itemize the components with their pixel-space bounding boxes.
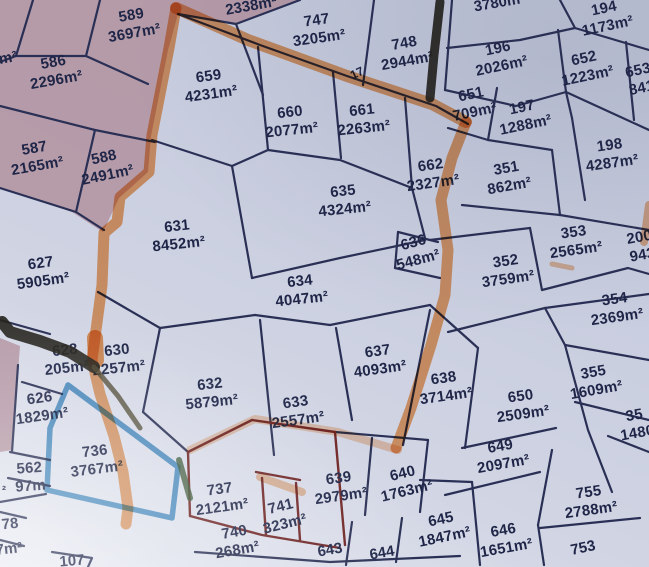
parcel-label-198: 1984287m² xyxy=(582,133,639,177)
parcel-label-352: 3523759m² xyxy=(478,249,535,293)
parcel-label-748: 7482944m² xyxy=(377,30,435,75)
parcel-label-632: 6325879m² xyxy=(183,373,239,415)
parcel-label-635: 6354324m² xyxy=(316,180,372,222)
parcel-label-646: 6461651m² xyxy=(476,517,534,562)
parcel-label-741: 741323m² xyxy=(257,493,309,539)
parcel-label-639: 6392979m² xyxy=(311,466,368,510)
map-text-fragment-78: 78 xyxy=(1,515,19,534)
map-text-fragment-644: 644 xyxy=(368,542,396,563)
parcel-label-586: 5862296m² xyxy=(26,49,84,94)
parcel-label-659: 6594231m² xyxy=(181,64,238,108)
parcel-label-637: 6374093m² xyxy=(350,339,407,383)
parcel-label-652: 6521223m² xyxy=(556,45,615,92)
parcel-number: 562 xyxy=(13,459,45,479)
parcel-label-196: 1962026m² xyxy=(470,35,529,82)
parcel-label-649: 6492097m² xyxy=(473,433,531,478)
parcel-label-562: 56297m xyxy=(13,459,46,498)
cadastral-map-photo: 5862296m²5893697m²5872165m²5882491m²6275… xyxy=(0,0,649,567)
map-text-fragment-7m: 7m² xyxy=(0,539,23,559)
parcel-label-736: 7363767m² xyxy=(68,440,125,483)
parcel-label-588: 5882491m² xyxy=(76,144,135,191)
map-text-fragment-3780m: 3780m xyxy=(473,0,522,15)
map-text-fragment-m: m² xyxy=(0,48,19,68)
parcel-label-197: 1971288m² xyxy=(494,94,553,141)
parcel-label-636: 636548m² xyxy=(390,229,442,276)
parcel-label-631: 6318452m² xyxy=(150,215,206,257)
parcel-label-755: 7552788m² xyxy=(561,480,618,524)
parcel-label-662: 6622327m² xyxy=(403,153,460,197)
map-text-fragment-643: 643 xyxy=(316,539,344,560)
parcel-label-660: 6602077m² xyxy=(263,101,319,143)
parcel-label-747: 7473205m² xyxy=(289,8,346,52)
parcel-area: 205m² xyxy=(44,358,90,381)
parcel-label-354: 3542369m² xyxy=(587,287,644,331)
parcel-area: 97m xyxy=(15,477,47,497)
map-text-fragment-17: 17 xyxy=(348,64,366,82)
map-text-fragment-753: 753 xyxy=(569,537,597,559)
parcel-label-628: 628205m² xyxy=(42,339,90,380)
parcel-label-653: 653841 xyxy=(624,59,649,100)
parcel-label-630: 6302257m² xyxy=(90,339,146,381)
parcel-label-737: 7372121m² xyxy=(192,477,249,521)
parcel-label-627: 6275905m² xyxy=(13,251,70,295)
parcel-label-740: 740268m² xyxy=(211,520,261,564)
parcel-label-633: 6332557m² xyxy=(268,390,325,434)
parcel-label-638: 6383714m² xyxy=(416,366,473,410)
map-text-fragment-2338m: 2338m² xyxy=(224,0,278,19)
parcel-label-355: 3551609m² xyxy=(566,359,624,404)
parcel-label-661: 6612263m² xyxy=(335,99,391,141)
parcel-label-194: 1941173m² xyxy=(577,0,636,41)
parcel-label-651: 651709m² xyxy=(448,81,499,126)
map-text-fragment-: ² xyxy=(2,483,6,497)
parcel-area: 841 xyxy=(627,77,649,100)
parcel-label-626: 6261829m² xyxy=(12,386,69,430)
parcel-label-640: 6401763m² xyxy=(375,459,435,507)
parcel-label-634: 6344047m² xyxy=(273,270,329,312)
parcel-label-650: 6502509m² xyxy=(493,384,550,428)
map-text-fragment-107: 107 xyxy=(59,551,85,567)
parcel-label-587: 5872165m² xyxy=(7,135,65,180)
parcel-label-200: 200943 xyxy=(625,227,649,267)
parcel-labels-layer: 5862296m²5893697m²5872165m²5882491m²6275… xyxy=(0,0,649,567)
parcel-area: 943 xyxy=(628,245,649,267)
parcel-label-589: 5893697m² xyxy=(104,2,162,47)
parcel-label-351: 351862m² xyxy=(483,156,533,200)
parcel-label-35: 351480 xyxy=(616,404,649,446)
parcel-label-645: 6451847m² xyxy=(413,506,472,553)
parcel-label-353: 3532565m² xyxy=(546,220,603,264)
